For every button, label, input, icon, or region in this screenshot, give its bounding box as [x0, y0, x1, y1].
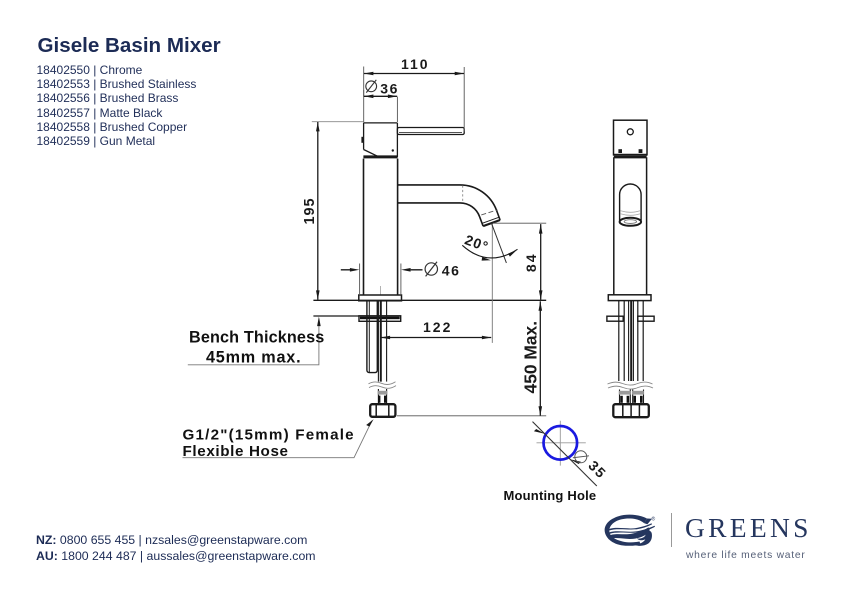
svg-text:195: 195 [302, 197, 318, 224]
svg-text:Mounting Hole: Mounting Hole [504, 488, 597, 503]
svg-text:20°: 20° [463, 231, 491, 254]
svg-text:122: 122 [423, 319, 452, 335]
svg-text:®: ® [652, 515, 656, 522]
svg-text:46: 46 [442, 263, 461, 279]
svg-text:Bench Thickness: Bench Thickness [189, 328, 324, 346]
svg-text:110: 110 [401, 56, 430, 72]
svg-text:G1/2"(15mm) Female: G1/2"(15mm) Female [183, 427, 355, 444]
svg-text:84: 84 [523, 253, 539, 273]
svg-text:45mm max.: 45mm max. [206, 349, 301, 367]
svg-text:36: 36 [380, 80, 399, 96]
svg-text:450 Max.: 450 Max. [521, 321, 541, 394]
svg-text:Flexible Hose: Flexible Hose [183, 443, 289, 460]
